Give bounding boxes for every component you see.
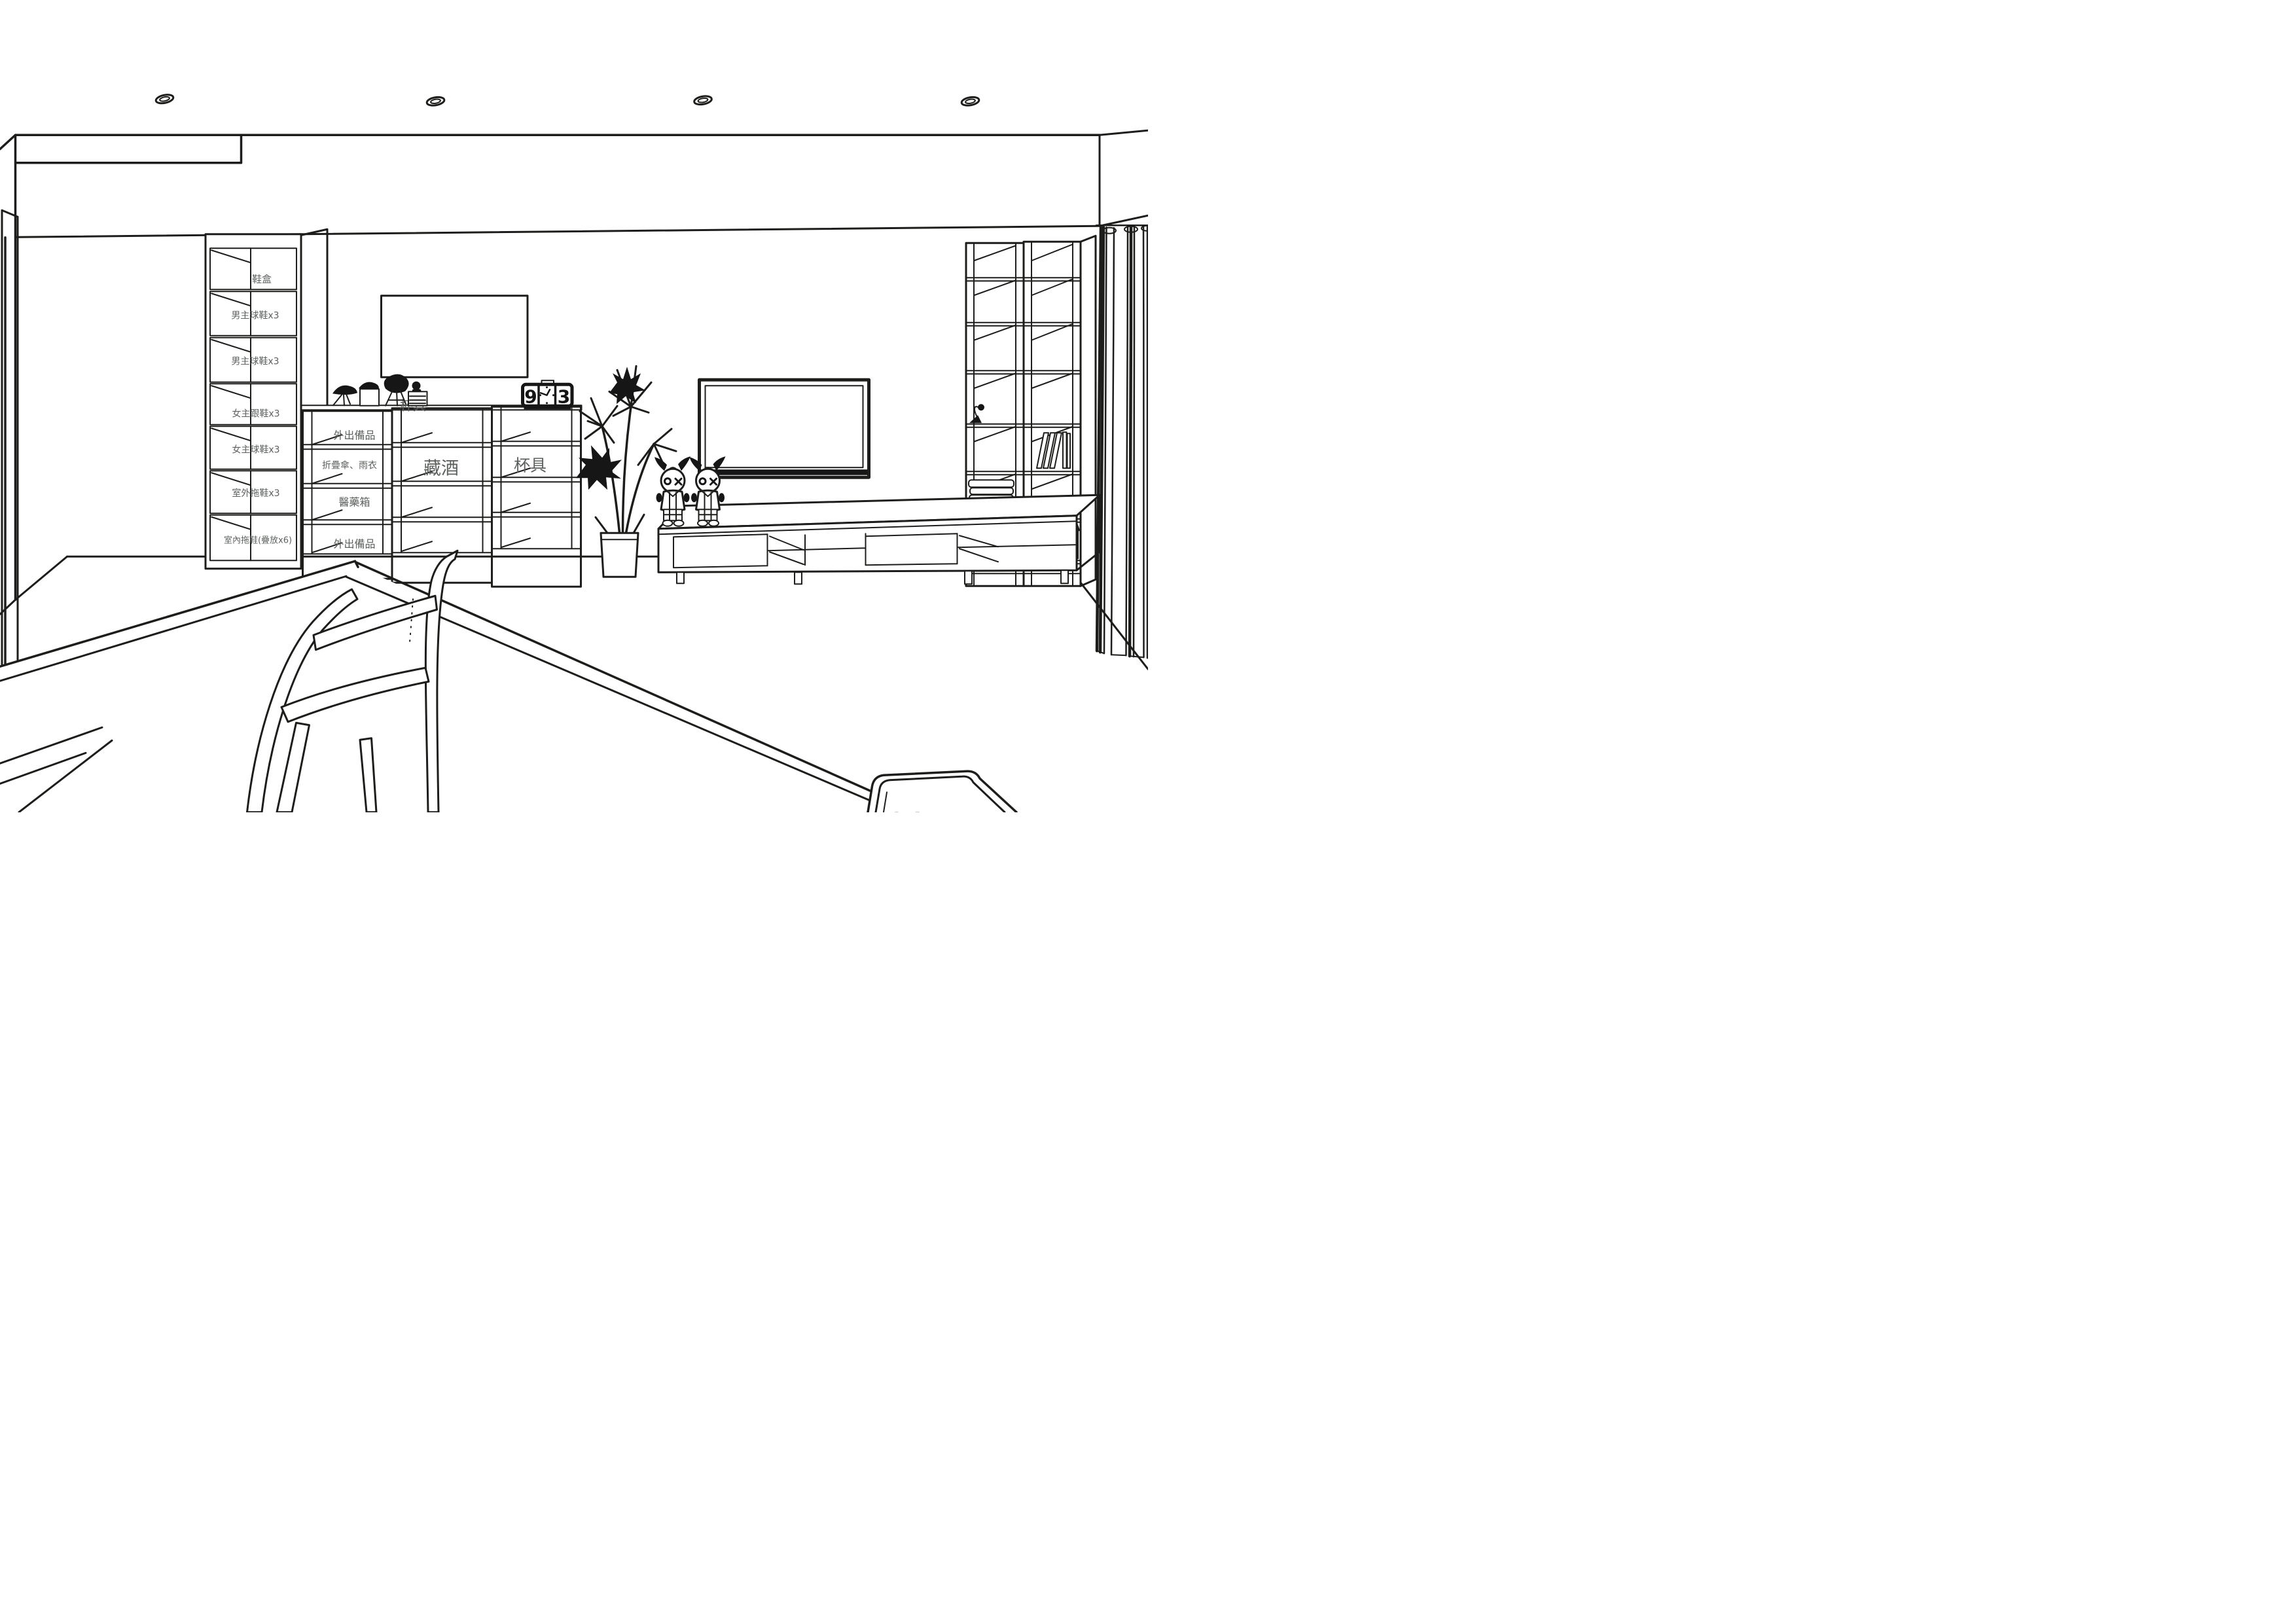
clock-minute-digit: 3	[558, 386, 570, 407]
clock-hour-digit: 9	[524, 386, 537, 407]
rendering-canvas: 鞋盒 男主球鞋x3 男主球鞋x3 女主跟鞋x3 女主球鞋x3 室外拖鞋x3 室內…	[0, 0, 1148, 812]
flip-clock: 9 3	[523, 380, 573, 409]
wine-shelf-label: 藏酒	[423, 458, 459, 478]
shoe-compartment-label: 男主球鞋x3	[231, 310, 279, 321]
console-leg	[965, 571, 972, 584]
cup-shelf-label: 杯具	[514, 456, 547, 475]
tv-console	[658, 495, 1100, 584]
shoe-compartment-label: 室外拖鞋x3	[232, 488, 279, 499]
shoe-compartment-label: 男主球鞋x3	[231, 356, 279, 367]
bird-on-cube-icon	[359, 382, 379, 406]
room-sketch: 鞋盒 男主球鞋x3 男主球鞋x3 女主跟鞋x3 女主球鞋x3 室外拖鞋x3 室內…	[0, 0, 1148, 812]
console-leg	[1061, 570, 1068, 583]
shoe-compartment-label: 女主球鞋x3	[232, 444, 279, 455]
shoe-compartment-label: 女主跟鞋x3	[232, 408, 279, 419]
shelf-row-label: 外出備品	[333, 537, 375, 550]
shelf-row-label: 外出備品	[333, 429, 375, 441]
shoe-compartment-label: 室內拖鞋(疊放x6)	[224, 535, 292, 545]
console-leg	[677, 572, 684, 583]
console-leg	[795, 572, 802, 584]
tv-screen	[700, 380, 869, 477]
shoe-compartment-label: 鞋盒	[252, 273, 272, 285]
shelf-row-label: 醫藥箱	[338, 496, 370, 508]
shelf-row-label: 折疊傘、雨衣	[322, 460, 377, 471]
tv	[700, 380, 869, 477]
picture-frame	[382, 296, 528, 378]
tv-speaker-bar	[701, 469, 868, 475]
